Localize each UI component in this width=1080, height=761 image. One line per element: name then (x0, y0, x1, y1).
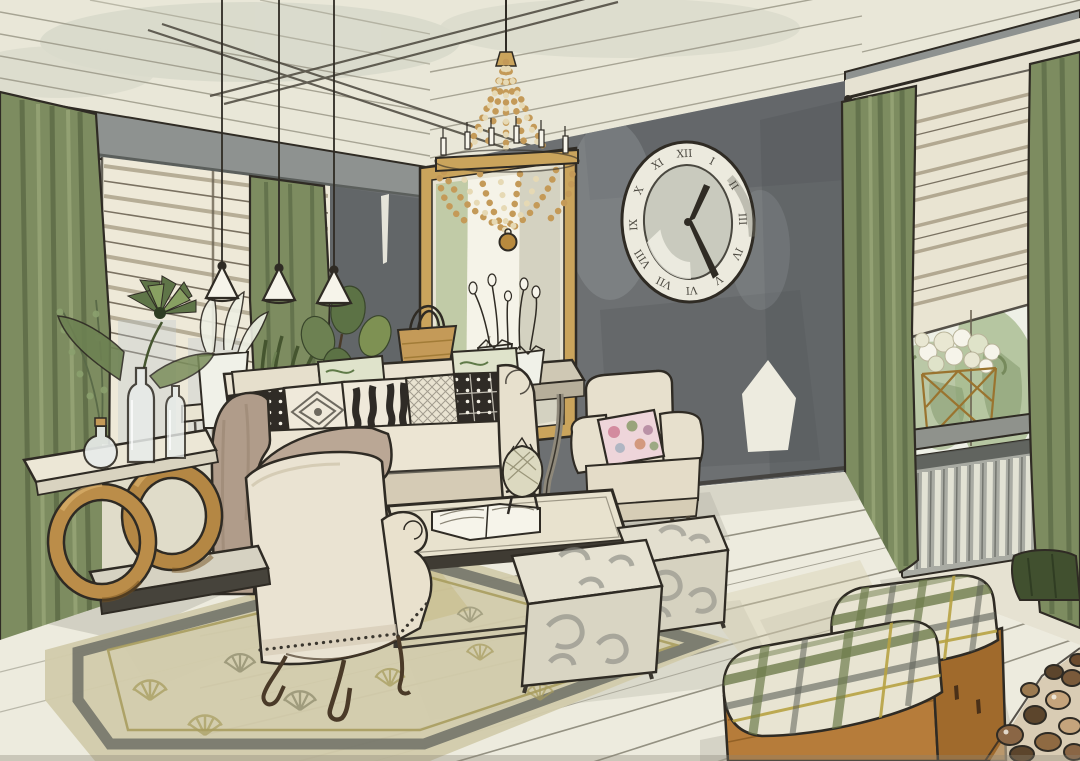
scan-edge-shadow (0, 755, 1080, 761)
slender-bottle (166, 386, 185, 458)
clock-numeral: III (736, 213, 749, 226)
clock-numeral: IX (628, 218, 641, 231)
pink-floral-pillow (598, 410, 664, 466)
sketch-svg: XII I II III IV V VI VII VIII IX X XI (0, 0, 1080, 761)
chandelier-finial (500, 234, 517, 251)
ottoman-front (512, 540, 662, 693)
clock-numeral: VI (685, 284, 698, 297)
watercolor-living-room-sketch: XII I II III IV V VI VII VIII IX X XI (0, 0, 1080, 761)
clock-numeral: XII (676, 148, 692, 161)
open-book (432, 504, 540, 540)
dark-green-pouf (1012, 550, 1080, 600)
right-roman-blind (908, 68, 1038, 338)
